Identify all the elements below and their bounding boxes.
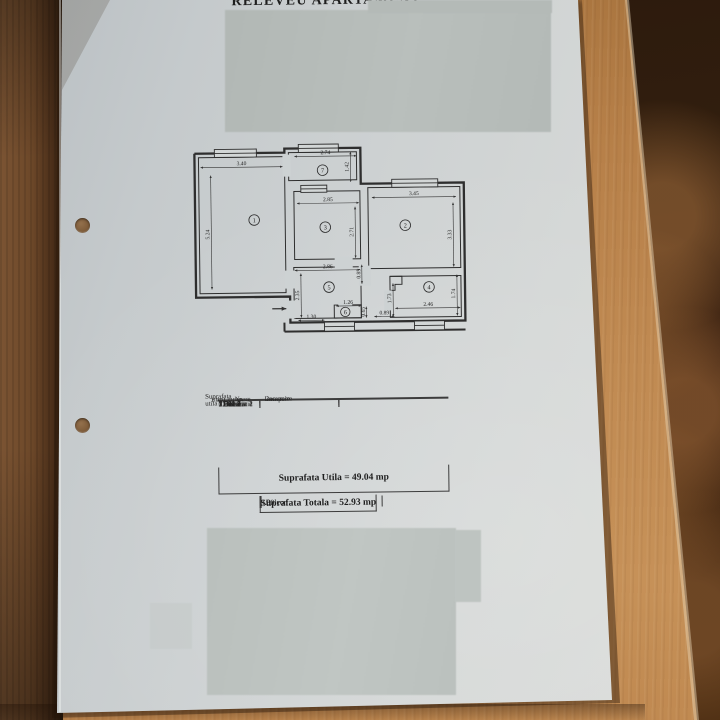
dimension-label: 0.89 — [379, 310, 389, 316]
dimension-label: 2.86 — [323, 264, 333, 270]
dimension-label: 2.71 — [349, 227, 355, 237]
dimension-label: 1.74 — [451, 288, 457, 298]
plan-dimension-labels: 3.40 5.24 2.74 1.42 2.85 2.71 3.45 3.33 … — [204, 149, 457, 322]
room-number-label: 1 — [253, 217, 256, 224]
suprafata-utila-total: Suprafata Utila = 49.04 mp — [218, 465, 449, 495]
room-number-label: 2 — [404, 222, 407, 229]
dimension-label: 2.35 — [295, 290, 301, 300]
room-number-label: 6 — [344, 309, 347, 316]
floor-plan: 3.40 5.24 2.74 1.42 2.85 2.71 3.45 3.33 … — [186, 139, 473, 338]
dimension-label: 2.46 — [423, 302, 433, 308]
dimension-label: 0.65 — [361, 307, 367, 317]
room-number-label: 3 — [324, 224, 327, 231]
row-name: Debara — [218, 399, 339, 409]
dimension-label: 2.85 — [323, 197, 333, 203]
dimension-label: 5.24 — [205, 229, 211, 239]
plan-windows — [214, 143, 444, 333]
row-area: 0.87 — [218, 400, 231, 408]
dimension-label: 3.33 — [447, 230, 453, 240]
room-number-label: 4 — [427, 284, 431, 291]
plan-dimension-lines — [200, 151, 460, 322]
plan-room-number-labels: 1 2 3 4 5 6 7 — [252, 166, 432, 317]
photographed-document-scene: RELEVEU APARTAMENT — [0, 0, 720, 720]
redaction-box-bottom-extension — [455, 530, 481, 602]
dimension-label: 3.40 — [237, 161, 247, 167]
redaction-box-bottom — [207, 528, 456, 695]
redaction-box-top — [225, 10, 551, 132]
dimension-label: 2.74 — [320, 150, 330, 156]
dimension-label: 1.30 — [306, 314, 316, 320]
area-table: Nr. incapere Denumire incapere Suprafata… — [217, 397, 448, 402]
room-number-label: 7 — [321, 167, 324, 174]
room-number-label: 5 — [327, 284, 330, 291]
dimension-label: 1.42 — [344, 162, 350, 172]
redaction-box-title-tail — [368, 0, 552, 13]
dimension-label: 0.85 — [356, 269, 362, 279]
redaction-box-faint — [150, 603, 192, 649]
plan-room-walls — [198, 151, 461, 320]
dimension-label: 3.45 — [409, 191, 419, 197]
dimension-label: 1.73 — [387, 293, 393, 303]
dimension-label: 1.26 — [343, 300, 353, 306]
balcon-block: Balcon 3.89 Suprafata Totala = 52.93 mp — [260, 494, 453, 496]
suprafata-totala-total: Suprafata Totala = 52.93 mp — [260, 495, 378, 513]
